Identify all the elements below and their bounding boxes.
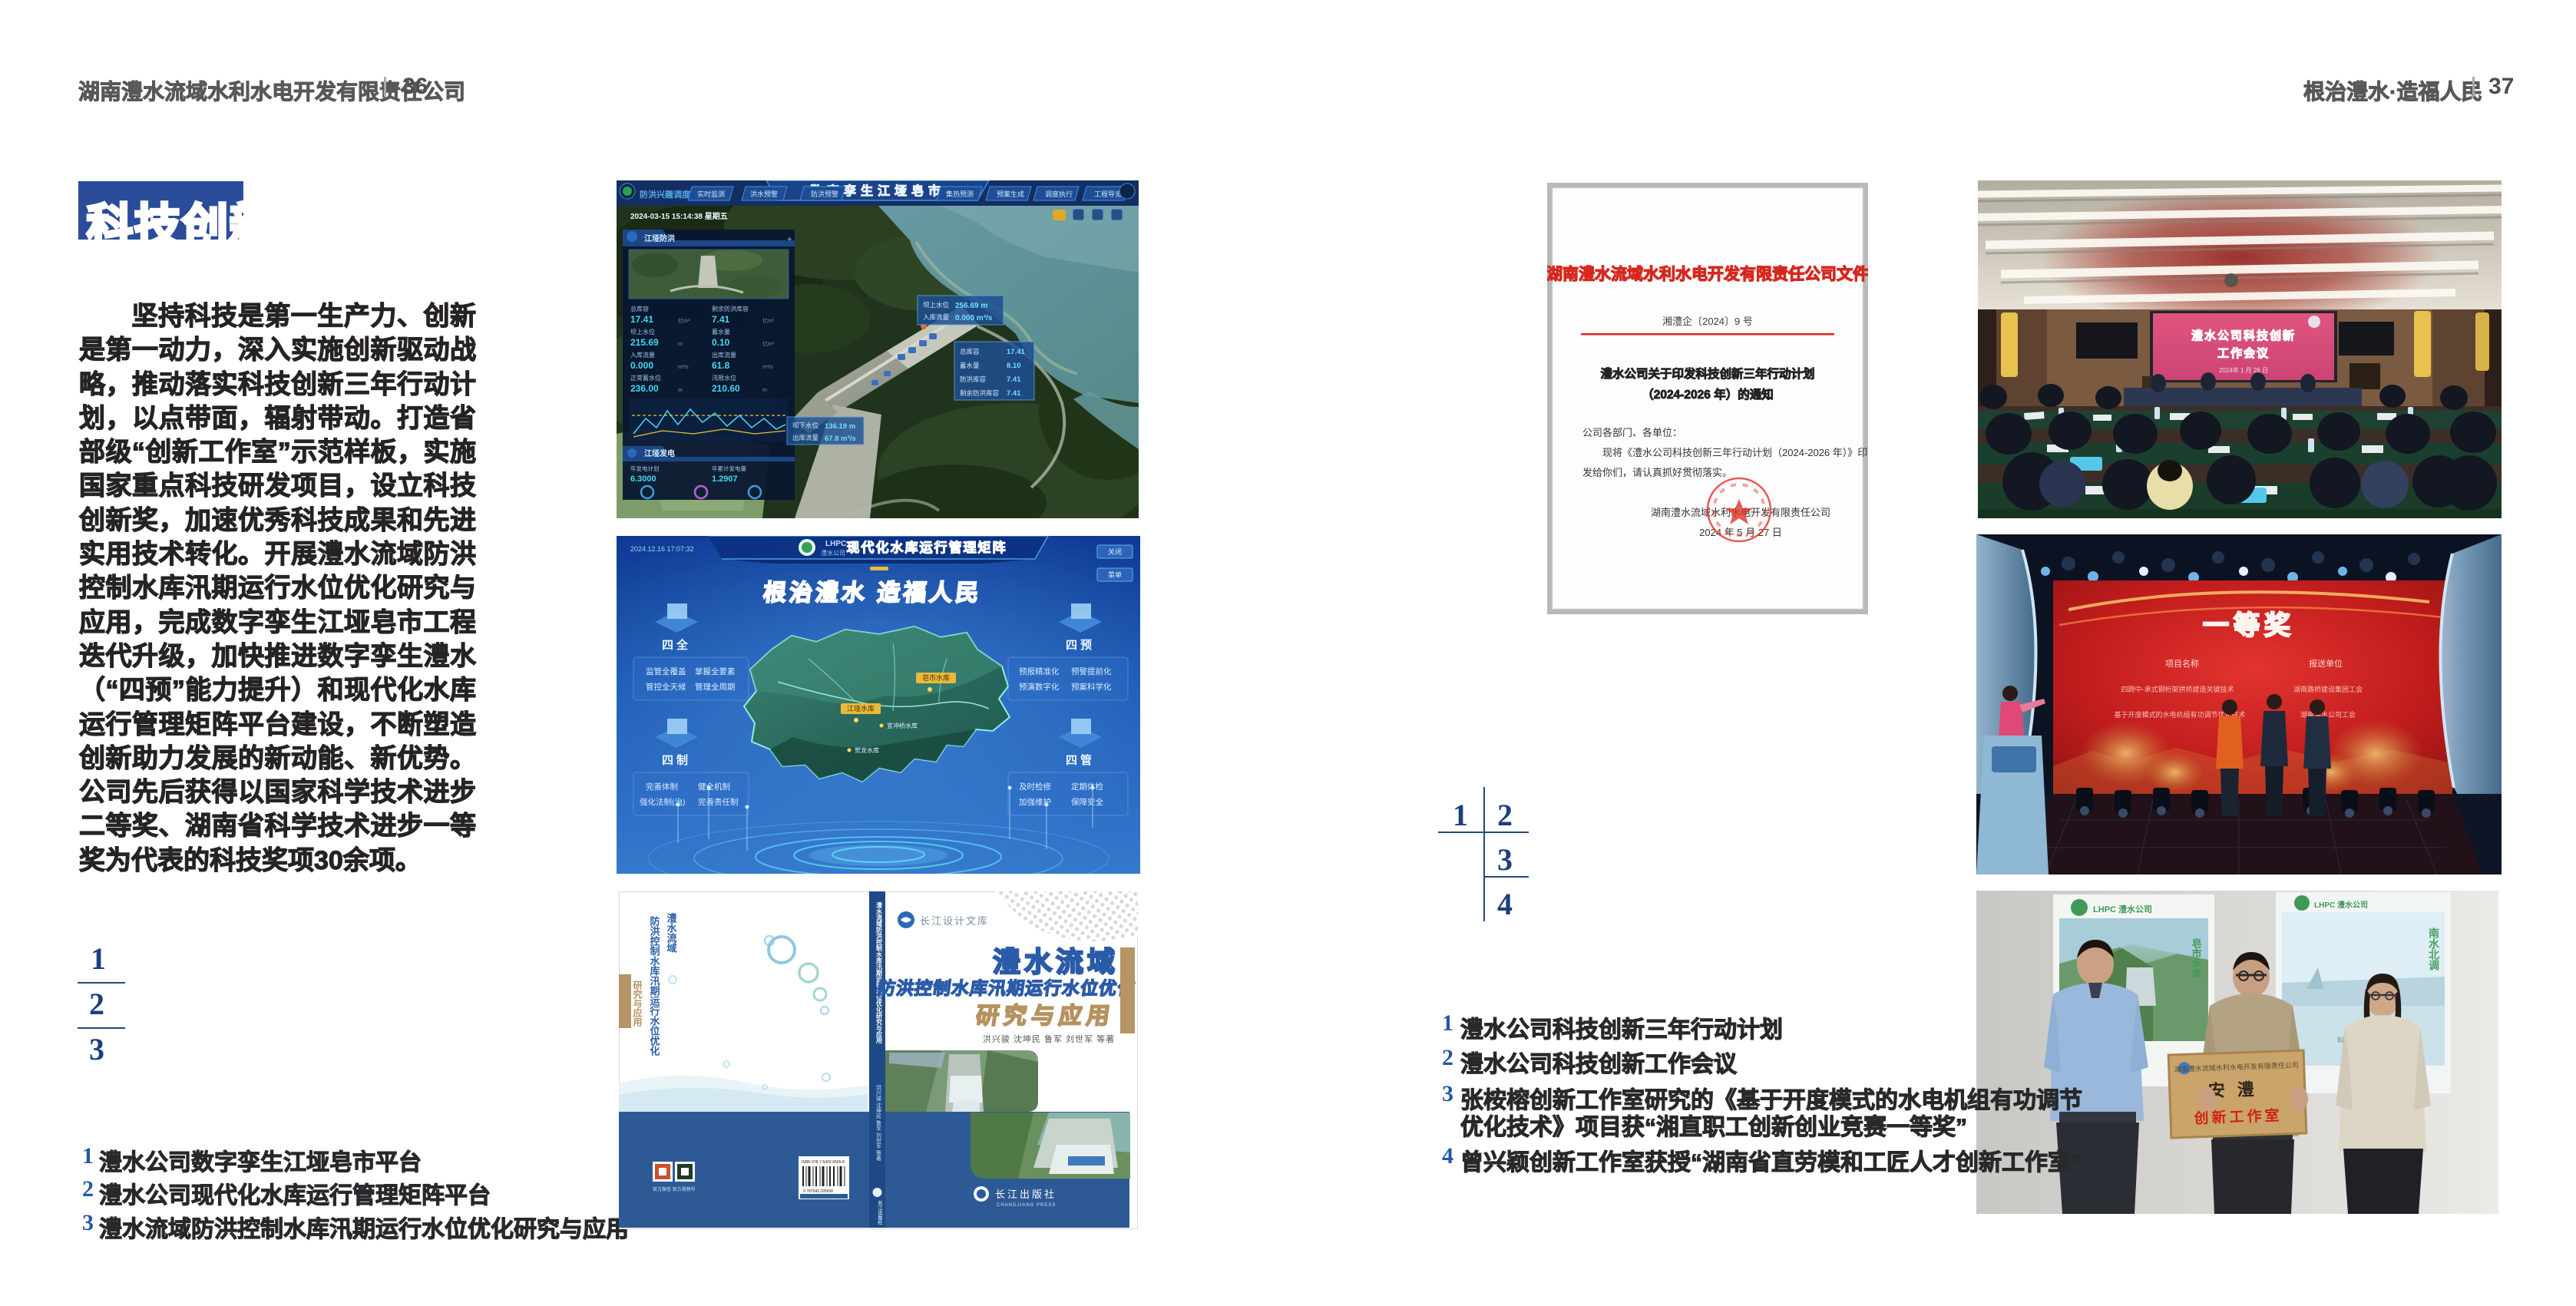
svg-text:澧水流域防洪控制水库汛期运行水位优化研究与应用: 澧水流域防洪控制水库汛期运行水位优化研究与应用 — [875, 901, 883, 1044]
svg-text:工程导览: 工程导览 — [1094, 190, 1122, 198]
svg-text:长江出版社: 长江出版社 — [995, 1189, 1057, 1200]
svg-text:m: m — [678, 388, 683, 393]
svg-text:四全: 四全 — [662, 638, 691, 652]
svg-text:ISBN 978-7-5492-9565-8: ISBN 978-7-5492-9565-8 — [802, 1160, 845, 1165]
svg-text:澧水公司: 澧水公司 — [821, 549, 845, 557]
svg-text:LHPC 澧水公司: LHPC 澧水公司 — [2093, 904, 2152, 914]
svg-text:正常蓄水位: 正常蓄水位 — [630, 374, 661, 382]
svg-text:预报精准化: 预报精准化 — [1019, 666, 1060, 676]
svg-text:皂市水库: 皂市水库 — [2191, 937, 2202, 979]
svg-text:总库容: 总库容 — [630, 305, 649, 312]
svg-text:蓄水量: 蓄水量 — [712, 328, 730, 336]
svg-text:关闭: 关闭 — [1108, 547, 1122, 556]
svg-text:汛限水位: 汛限水位 — [712, 374, 736, 382]
svg-text:LHPC 澧水公司: LHPC 澧水公司 — [2314, 900, 2368, 910]
svg-text:监管全覆盖: 监管全覆盖 — [646, 666, 686, 676]
svg-text:236.00: 236.00 — [630, 383, 659, 394]
svg-text:澧水公司科技创新: 澧水公司科技创新 — [2191, 329, 2296, 342]
svg-text:调度执行: 调度执行 — [1045, 190, 1073, 198]
svg-text:南水北调: 南水北调 — [2428, 927, 2440, 971]
svg-text:防洪预警: 防洪预警 — [811, 190, 838, 198]
svg-text:预警提前化: 预警提前化 — [1071, 666, 1112, 676]
svg-text:m³/s: m³/s — [762, 365, 773, 370]
svg-text:LHPC: LHPC — [825, 540, 846, 548]
svg-text:澧水流域: 澧水流域 — [666, 912, 677, 954]
svg-text:6.3000: 6.3000 — [630, 474, 656, 484]
svg-text:8.10: 8.10 — [1007, 362, 1021, 370]
svg-text:7.41: 7.41 — [712, 314, 730, 325]
svg-text:9 787549 295658: 9 787549 295658 — [803, 1189, 833, 1194]
svg-text:1.2907: 1.2907 — [712, 474, 738, 484]
svg-text:61.8: 61.8 — [712, 360, 730, 371]
svg-text:健全机制: 健全机制 — [698, 782, 730, 792]
svg-text:一等奖: 一等奖 — [2203, 611, 2295, 640]
svg-text:防洪库容: 防洪库容 — [960, 375, 987, 383]
svg-text:0.000: 0.000 — [630, 360, 653, 371]
svg-text:湖南路桥建设集团工会: 湖南路桥建设集团工会 — [2293, 685, 2363, 693]
svg-text:长江设计文库: 长江设计文库 — [920, 915, 989, 927]
svg-text:蓄水量: 蓄水量 — [960, 362, 980, 369]
svg-text:年发电计划: 年发电计划 — [630, 465, 660, 472]
svg-text:工作会议: 工作会议 — [2217, 346, 2270, 360]
svg-text:m: m — [678, 342, 683, 347]
svg-text:2024年 1 月 26 日: 2024年 1 月 26 日 — [2219, 366, 2268, 374]
svg-text:掌握全要素: 掌握全要素 — [695, 666, 736, 676]
svg-text:亿m³: 亿m³ — [762, 340, 775, 347]
svg-text:坝上水位: 坝上水位 — [630, 328, 655, 336]
svg-text:完善责任制: 完善责任制 — [698, 797, 739, 807]
svg-text:贺龙水库: 贺龙水库 — [855, 746, 879, 754]
svg-text:集热预测: 集热预测 — [946, 190, 974, 198]
svg-text:现将《澧水公司科技创新三年行动计划（2024-2026 年）: 现将《澧水公司科技创新三年行动计划（2024-2026 年）》印 — [1602, 447, 1867, 458]
svg-text:坝下水位: 坝下水位 — [792, 422, 819, 429]
svg-text:实时监测: 实时监测 — [697, 190, 725, 198]
svg-text:防洪兴趣调度: 防洪兴趣调度 — [640, 189, 691, 200]
svg-text:256.69 m: 256.69 m — [955, 302, 987, 310]
svg-text:管控全天候: 管控全天候 — [646, 682, 686, 692]
svg-text:2024-03-15 15:14:38 星期五: 2024-03-15 15:14:38 星期五 — [630, 211, 728, 221]
svg-text:研究与应用: 研究与应用 — [632, 980, 643, 1027]
svg-text:根治澧水 造福人民: 根治澧水 造福人民 — [762, 580, 983, 606]
svg-text:定期体检: 定期体检 — [1071, 782, 1103, 792]
svg-text:洪兴骏 沈坤民 鲁军 刘世军 等著: 洪兴骏 沈坤民 鲁军 刘世军 等著 — [876, 1084, 882, 1162]
svg-text:江垭水库: 江垭水库 — [847, 704, 875, 713]
svg-text:0.000 m³/s: 0.000 m³/s — [955, 314, 993, 322]
svg-text:澧水流域: 澧水流域 — [993, 946, 1119, 977]
svg-text:四制: 四制 — [662, 753, 691, 767]
svg-text:m: m — [762, 388, 767, 393]
svg-text:预演数字化: 预演数字化 — [1019, 682, 1060, 692]
svg-text:发给你们，请认真抓好贯彻落实。: 发给你们，请认真抓好贯彻落实。 — [1582, 467, 1732, 478]
svg-text:防洪控制水库汛期运行水位优化: 防洪控制水库汛期运行水位优化 — [876, 978, 1137, 998]
svg-text:总库容: 总库容 — [960, 348, 980, 355]
svg-text:预案科学化: 预案科学化 — [1071, 682, 1112, 692]
svg-text:江垭发电: 江垭发电 — [644, 448, 675, 458]
svg-text:官方微信 官方视频号: 官方微信 官方视频号 — [653, 1186, 696, 1192]
svg-text:剩余防洪库容: 剩余防洪库容 — [960, 389, 1000, 397]
svg-text:报送单位: 报送单位 — [2309, 658, 2343, 669]
svg-text:洪水预警: 洪水预警 — [750, 190, 778, 198]
svg-text:防洪控制水库汛期运行水位优化: 防洪控制水库汛期运行水位优化 — [649, 915, 661, 1056]
svg-text:公司各部门、各单位：: 公司各部门、各单位： — [1582, 427, 1682, 438]
svg-text:136.19 m: 136.19 m — [825, 422, 855, 431]
svg-text:湘澧企〔2024〕9 号: 湘澧企〔2024〕9 号 — [1662, 316, 1753, 327]
svg-text:宜冲桥水库: 宜冲桥水库 — [887, 722, 918, 729]
svg-text:7.41: 7.41 — [1007, 389, 1021, 398]
svg-text:67.8 m³/s: 67.8 m³/s — [825, 435, 856, 443]
svg-text:17.41: 17.41 — [630, 314, 653, 325]
svg-text:7.41: 7.41 — [1007, 375, 1021, 384]
svg-text:现代化水库运行管理矩阵: 现代化水库运行管理矩阵 — [847, 540, 1007, 555]
svg-text:m³/s: m³/s — [678, 365, 689, 370]
svg-text:完善体制: 完善体制 — [646, 782, 678, 792]
svg-text:坝上水位: 坝上水位 — [923, 301, 950, 309]
svg-text:+: + — [787, 235, 792, 244]
svg-text:预案生成: 预案生成 — [997, 190, 1024, 198]
svg-text:入库流量: 入库流量 — [923, 313, 950, 321]
svg-text:剩余防洪库容: 剩余防洪库容 — [712, 305, 749, 312]
svg-text:保障安全: 保障安全 — [1071, 797, 1103, 807]
svg-text:CHANGJIANG PRESS: CHANGJIANG PRESS — [997, 1203, 1056, 1208]
svg-text:四预: 四预 — [1066, 639, 1095, 652]
svg-text:及时检修: 及时检修 — [1019, 782, 1051, 792]
svg-text:菜单: 菜单 — [1108, 570, 1122, 579]
svg-text:亿m³: 亿m³ — [678, 317, 690, 324]
svg-text:215.69: 215.69 — [630, 337, 659, 348]
svg-text:洪兴骏 沈坤民 鲁军 刘世军 等著: 洪兴骏 沈坤民 鲁军 刘世军 等著 — [983, 1033, 1115, 1044]
svg-text:2024.12.16 17:07:32: 2024.12.16 17:07:32 — [630, 545, 694, 553]
svg-text:出库流量: 出库流量 — [712, 351, 736, 359]
svg-text:亿m³: 亿m³ — [762, 317, 775, 324]
svg-text:研究与应用: 研究与应用 — [974, 1002, 1116, 1029]
svg-text:项目名称: 项目名称 — [2165, 658, 2199, 669]
svg-text:年累计发电量: 年累计发电量 — [712, 465, 746, 472]
svg-text:出库流量: 出库流量 — [792, 434, 819, 441]
svg-text:湖南澧水流域水利水电开发有限责任公司文件: 湖南澧水流域水利水电开发有限责任公司文件 — [1547, 265, 1868, 283]
svg-text:管理全周期: 管理全周期 — [695, 682, 736, 692]
svg-text:澧水公司关于印发科技创新三年行动计划: 澧水公司关于印发科技创新三年行动计划 — [1600, 366, 1814, 381]
svg-text:17.41: 17.41 — [1007, 348, 1025, 356]
svg-text:（2024-2026 年）的通知: （2024-2026 年）的通知 — [1642, 387, 1773, 402]
svg-text:江垭防洪: 江垭防洪 — [644, 233, 675, 243]
svg-text:210.60: 210.60 — [712, 383, 740, 394]
svg-text:0.10: 0.10 — [712, 337, 730, 348]
svg-text:四管: 四管 — [1066, 753, 1095, 767]
svg-text:四跨中-承式钢桁架拱桥建造关键技术: 四跨中-承式钢桁架拱桥建造关键技术 — [2121, 685, 2234, 693]
svg-text:入库流量: 入库流量 — [630, 351, 655, 359]
svg-text:安澧: 安澧 — [2207, 1080, 2267, 1101]
svg-text:皂市水库: 皂市水库 — [922, 673, 950, 682]
